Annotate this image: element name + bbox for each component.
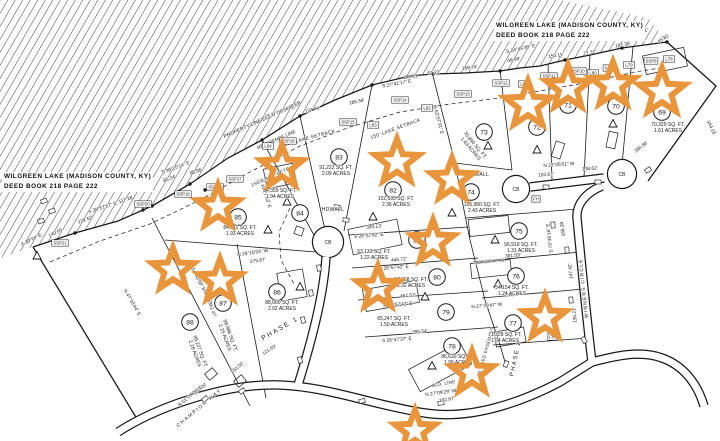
septic-triangle-icon xyxy=(421,293,429,301)
bearing-label: 393.13' xyxy=(366,223,382,230)
station-marker-box xyxy=(317,265,322,272)
parcel-line xyxy=(165,240,316,252)
septic-triangle-icon xyxy=(264,226,272,234)
bearing-label: S 26°57'42" E xyxy=(379,264,409,273)
ref-box-label: FH xyxy=(533,197,539,202)
survey-point-dot xyxy=(141,208,144,211)
lot-star-marker[interactable] xyxy=(524,296,566,336)
plat-map: CBCBCBS 39°04' E140.65122.52'S 39°57'57"… xyxy=(0,0,720,441)
lot-number: 87 xyxy=(219,300,227,307)
lot-area-label: 84,359 SQ. FT.1.94 ACRES xyxy=(263,188,297,200)
ref-box-label: SSP21 xyxy=(53,241,67,246)
lot-area-label: 84,211 SQ. FT.1.93 ACRES xyxy=(223,225,256,237)
ref-box-label: SSP12 xyxy=(494,81,508,86)
lot-star-marker[interactable] xyxy=(375,139,419,181)
ref-box-label: SSP13 xyxy=(456,92,470,97)
building-footprint xyxy=(468,215,510,236)
lot-star-marker[interactable] xyxy=(412,220,454,260)
lake-deed-note-left: WILGREEN LAKE (MADISON COUNTY, KY) DEED … xyxy=(2,172,153,192)
map-label: PHASE 1 xyxy=(509,341,522,377)
ref-box-label: SSP19 xyxy=(176,192,190,197)
parcel-line xyxy=(344,85,372,231)
ref-box-label: SSP17 xyxy=(228,177,242,182)
bearing-label: 275.87' xyxy=(250,257,266,265)
station-marker-box xyxy=(569,297,574,303)
plat-map-canvas: CBCBCBS 39°04' E140.65122.52'S 39°57'57"… xyxy=(0,0,720,441)
station-marker-box xyxy=(644,167,651,173)
ref-box-label: SSP15 xyxy=(341,120,355,125)
property-boundary-line xyxy=(33,247,137,419)
bearing-label: 103.67' xyxy=(538,171,554,178)
lot-number: 85 xyxy=(234,214,242,221)
ref-box-label: SSP20 xyxy=(136,202,150,207)
parcel-line xyxy=(152,218,250,406)
lake-name-label: WILGREEN LAKE (MADISON COUNTY, KY) xyxy=(4,172,151,182)
bearing-label: S 26°57'42" E xyxy=(354,232,384,241)
bearing-label: 280.86' xyxy=(633,140,649,154)
bearing-label: 185.38 xyxy=(559,221,567,237)
station-marker-box xyxy=(343,218,349,223)
lot-number: 84 xyxy=(296,210,304,217)
station-marker-box xyxy=(300,317,305,324)
septic-triangle-icon xyxy=(369,213,377,221)
bearing-label: N 63°07'31" E xyxy=(431,105,445,135)
bearing-label: 467.52' xyxy=(400,292,416,299)
map-label: PHASE 1 xyxy=(261,315,300,342)
lot-number: 70 xyxy=(612,103,620,110)
lot-number: 86 xyxy=(273,289,281,296)
station-marker-box xyxy=(503,360,509,367)
septic-triangle-icon xyxy=(428,362,436,370)
septic-triangle-icon xyxy=(491,236,499,244)
bearing-label: 445.72' xyxy=(391,256,407,263)
ref-box-label: L82 xyxy=(423,106,431,111)
lot-area-label: 102,635 SQ. FT.2.36 ACRES xyxy=(378,196,414,208)
ref-box-label: L84 xyxy=(264,144,272,149)
ref-box-label: L79 xyxy=(625,63,633,68)
lot-number: 83 xyxy=(335,154,343,161)
parcel-line xyxy=(455,163,512,170)
lot-number: 79 xyxy=(442,309,450,316)
septic-triangle-icon xyxy=(609,120,617,128)
culdesac-label: CB xyxy=(619,172,627,178)
ref-box-label: SSP8 xyxy=(646,59,658,64)
lot-star-marker[interactable] xyxy=(505,81,551,124)
bearing-label: 395.54' xyxy=(412,328,428,335)
septic-triangle-icon xyxy=(33,252,41,260)
bearing-label: N 26°15'54" W xyxy=(237,248,269,258)
station-marker-box xyxy=(543,185,549,189)
lot-area-label: 98,986 SQ. FT.2.25 ACRES xyxy=(216,319,239,355)
survey-point-dot xyxy=(260,138,263,141)
bearing-label: 138.62' xyxy=(582,165,598,172)
septic-triangle-icon xyxy=(448,209,456,217)
survey-point-dot xyxy=(498,69,501,72)
bearing-label: 185.58' xyxy=(349,97,366,106)
lot-number: 76 xyxy=(512,273,520,280)
survey-point-dot xyxy=(73,231,76,234)
lot-area-label: 88,000 SQ. FT.2.02 ACRES xyxy=(265,300,299,312)
lot-number: 77 xyxy=(509,320,517,327)
lot-number: 78 xyxy=(448,343,456,350)
lot-star-marker[interactable] xyxy=(152,248,194,288)
building-footprint xyxy=(205,368,218,381)
deed-book-label: DEED BOOK 218 PAGE 222 xyxy=(4,182,151,192)
building-footprint xyxy=(294,226,304,236)
survey-point-dot xyxy=(298,114,301,117)
culdesac-label: CB xyxy=(325,240,333,246)
bearing-label: 192.87' xyxy=(439,396,455,404)
lot-area-label: 71,328 SQ. FT.1.64 ACRES xyxy=(488,332,522,344)
lot-number: 73 xyxy=(480,129,488,136)
culdesac-label: CB xyxy=(513,187,521,193)
lot-number: 74 xyxy=(467,189,475,196)
map-label: BLD. LINE xyxy=(432,379,456,388)
deed-book-label: DEED BOOK 218 PAGE 222 xyxy=(496,31,643,41)
lot-area-label: 99,227 SQ. FT.2.28 ACRES xyxy=(186,335,209,371)
lot-number: 82 xyxy=(389,187,397,194)
map-label: HDWALL xyxy=(322,207,344,213)
building-footprint xyxy=(551,141,565,159)
bearing-label: 121.63' xyxy=(261,343,277,356)
lot-area-label: 56,919 SQ. FT.1.31 ACRES xyxy=(504,242,538,254)
building-footprint xyxy=(606,131,618,149)
ref-box-label: SSP14 xyxy=(393,98,407,103)
bearing-label: 147.42' xyxy=(567,263,575,279)
septic-triangle-icon xyxy=(533,146,541,154)
bearing-label: 344.18 xyxy=(705,120,717,136)
bearing-label: 150.00' xyxy=(229,361,245,376)
survey-point-dot xyxy=(563,58,566,61)
lot-area-label: 54,154 SQ. FT.1.24 ACRES xyxy=(495,285,529,297)
lot-number: 80 xyxy=(433,274,441,281)
station-marker-box xyxy=(595,180,601,184)
ref-box-label: L83 xyxy=(369,123,377,128)
lot-area-label: 65,247 SQ. FT.1.50 ACRES xyxy=(377,316,411,328)
lot-area-label: 70,329 SQ. FT.1.61 ACRES xyxy=(651,122,685,134)
lot-number: 69 xyxy=(658,109,666,116)
station-marker-box xyxy=(309,290,314,297)
lot-number: 88 xyxy=(186,319,194,326)
survey-point-dot xyxy=(203,188,206,191)
bearing-label: S 26°47'37" E xyxy=(382,336,412,345)
survey-point-dot xyxy=(188,182,191,185)
station-marker-box xyxy=(565,247,570,253)
bearing-label: N 47°18'44" E xyxy=(122,288,142,317)
survey-point-dot xyxy=(370,83,373,86)
bearing-label: N 27°20'47" W xyxy=(471,302,503,311)
lot-number: 75 xyxy=(515,228,523,235)
lot-number: 71 xyxy=(564,102,572,109)
lot-area-label: 91,222 SQ. FT.2.09 ACRES xyxy=(319,165,353,177)
septic-triangle-icon xyxy=(296,283,304,291)
ref-box-label: L78 xyxy=(665,57,673,62)
septic-triangle-icon xyxy=(484,142,492,150)
lake-deed-note-right: WILGREEN LAKE (MADISON COUNTY, KY) DEED … xyxy=(494,21,645,41)
parcel-line xyxy=(365,327,498,337)
lake-name-label: WILGREEN LAKE (MADISON COUNTY, KY) xyxy=(496,21,643,31)
bearing-label: N 27°20'47" W xyxy=(473,258,505,267)
bearing-label: N 23°05'01" W xyxy=(543,161,575,169)
lot-area-label: 53,133 SQ. FT.1.22 ACRES xyxy=(357,249,391,261)
